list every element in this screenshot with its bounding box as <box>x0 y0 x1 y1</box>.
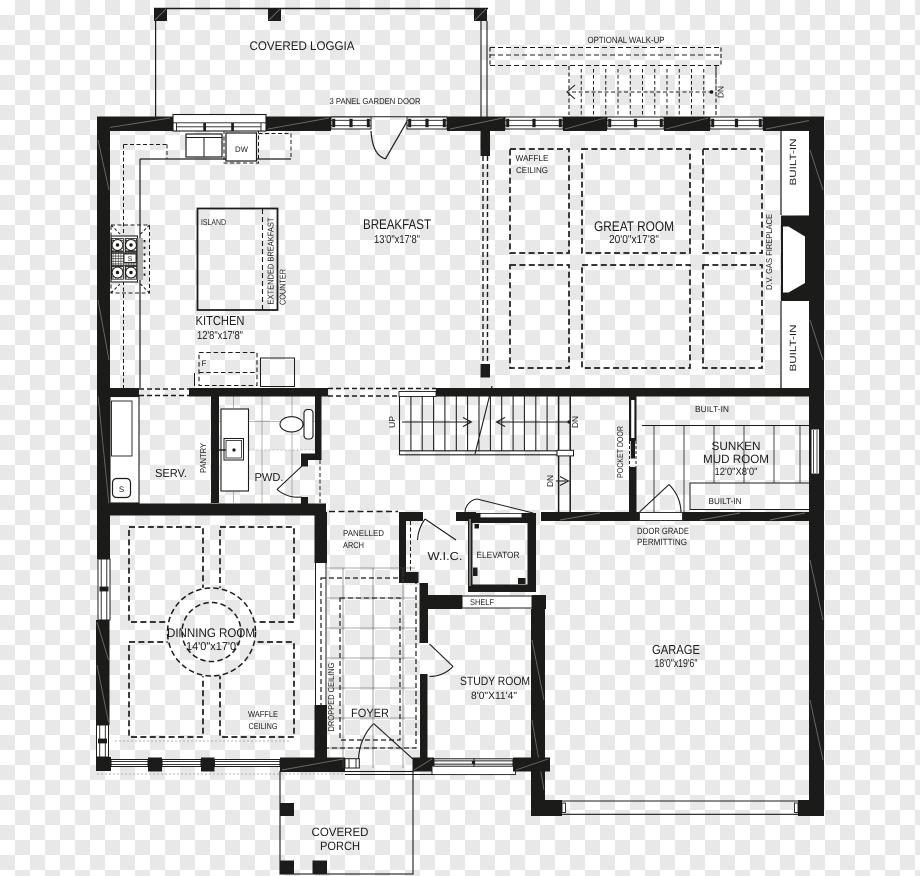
svg-text:12'0"X8'0": 12'0"X8'0" <box>715 466 758 478</box>
svg-text:W.I.C.: W.I.C. <box>428 551 463 563</box>
svg-text:12'8"x17'8": 12'8"x17'8" <box>197 330 243 342</box>
svg-text:CEILING: CEILING <box>516 165 548 175</box>
svg-text:S: S <box>119 485 124 494</box>
svg-text:14'0"x17'0": 14'0"x17'0" <box>186 641 240 653</box>
svg-text:PORCH: PORCH <box>320 839 360 853</box>
svg-text:DINNING ROOM: DINNING ROOM <box>167 626 255 640</box>
svg-text:8'0"X11'4": 8'0"X11'4" <box>471 690 517 702</box>
svg-text:STUDY ROOM: STUDY ROOM <box>460 674 530 688</box>
svg-text:DOOR GRADE: DOOR GRADE <box>637 526 689 536</box>
svg-text:GARAGE: GARAGE <box>652 642 700 657</box>
svg-text:3 PANEL GARDEN DOOR: 3 PANEL GARDEN DOOR <box>330 96 421 106</box>
svg-text:F: F <box>202 359 207 368</box>
svg-text:POCKET DOOR: POCKET DOOR <box>615 426 625 478</box>
svg-text:CEILING: CEILING <box>249 721 278 731</box>
svg-text:ISLAND: ISLAND <box>201 217 226 227</box>
svg-text:UP: UP <box>387 416 397 428</box>
svg-text:BUILT-IN: BUILT-IN <box>788 139 798 186</box>
svg-text:WAFFLE: WAFFLE <box>516 153 549 163</box>
svg-text:SHELF: SHELF <box>470 597 494 607</box>
svg-text:PANTRY: PANTRY <box>198 443 208 473</box>
svg-text:KITCHEN: KITCHEN <box>196 313 245 328</box>
svg-text:SERV.: SERV. <box>155 468 187 480</box>
svg-text:COVERED: COVERED <box>312 825 369 839</box>
svg-text:DN: DN <box>716 86 726 98</box>
svg-text:ARCH: ARCH <box>343 540 364 550</box>
svg-text:ELEVATOR: ELEVATOR <box>477 550 520 560</box>
svg-text:DW: DW <box>235 145 248 154</box>
svg-text:S: S <box>128 256 133 263</box>
svg-text:OPTIONAL WALK-UP: OPTIONAL WALK-UP <box>588 35 665 45</box>
svg-text:GREAT ROOM: GREAT ROOM <box>594 218 674 234</box>
svg-text:COVERED LOGGIA: COVERED LOGGIA <box>250 39 356 53</box>
svg-text:D.V. GAS FIREPLACE: D.V. GAS FIREPLACE <box>764 214 774 290</box>
svg-text:COUNTER: COUNTER <box>278 269 288 305</box>
svg-text:PWD.: PWD. <box>255 472 284 484</box>
svg-text:BREAKFAST: BREAKFAST <box>363 216 431 232</box>
svg-text:20'0"x17'8": 20'0"x17'8" <box>609 234 659 246</box>
svg-text:FOYER: FOYER <box>351 706 389 720</box>
svg-text:MUD ROOM: MUD ROOM <box>703 452 769 466</box>
svg-text:PERMITTING: PERMITTING <box>637 537 687 547</box>
svg-text:13'0"x17'8": 13'0"x17'8" <box>374 234 420 246</box>
svg-text:EXTENDED BREAKFAST: EXTENDED BREAKFAST <box>266 218 276 305</box>
svg-text:18'0"x19'6": 18'0"x19'6" <box>655 658 698 670</box>
svg-text:BUILT-IN: BUILT-IN <box>788 325 798 372</box>
svg-text:PANELLED: PANELLED <box>343 528 384 538</box>
svg-text:DN: DN <box>545 475 555 487</box>
svg-text:BUILT-IN: BUILT-IN <box>695 404 729 414</box>
svg-text:SUNKEN: SUNKEN <box>712 439 761 453</box>
svg-text:DROPPED CEILING: DROPPED CEILING <box>326 663 336 732</box>
svg-text:BUILT-IN: BUILT-IN <box>709 496 742 506</box>
svg-text:WAFFLE: WAFFLE <box>248 709 278 719</box>
svg-text:DN: DN <box>570 416 580 428</box>
